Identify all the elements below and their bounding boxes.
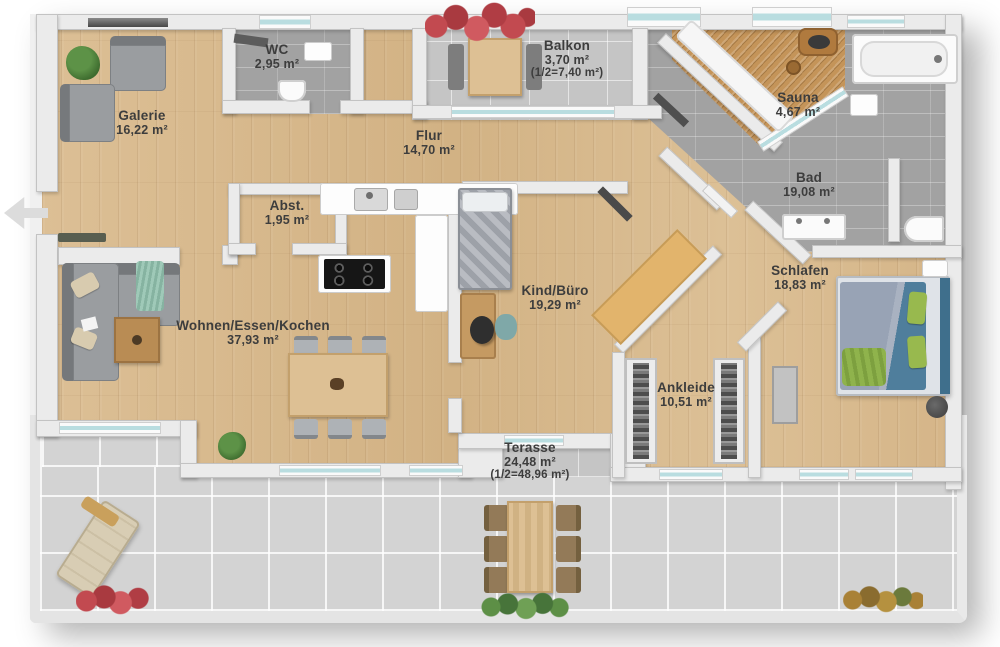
bath-sink: [782, 214, 846, 240]
wall-bath-partition: [888, 158, 900, 242]
bath-toilet: [904, 216, 944, 242]
coffee-table-bowl-icon: [132, 335, 142, 345]
bed-headboard: [940, 278, 950, 394]
room-label-abst: Abst. 1,95 m²: [265, 198, 309, 227]
dresser: [772, 366, 798, 424]
terrace-plants-orange-icon: [843, 584, 923, 616]
window-left-bottom-wall: [60, 423, 160, 433]
room-label-bad: Bad 19,08 m²: [783, 170, 835, 199]
stool-teal: [495, 314, 517, 340]
dining-chair: [328, 419, 352, 439]
wc-sink: [304, 42, 332, 61]
window-balcony-door: [452, 107, 614, 117]
terrace-plants-icon: [480, 592, 572, 622]
room-label-ankleide: Ankleide 10,51 m²: [657, 380, 715, 409]
sideboard: [58, 233, 106, 242]
wall-abst-bottom-a: [228, 243, 256, 255]
terrace-chair: [484, 536, 509, 562]
room-label-terasse: Terasse 24,48 m² (1/2=48,96 m²): [490, 440, 569, 482]
wardrobe-clothes-icon: [721, 363, 737, 459]
window-top-wc: [260, 16, 310, 28]
window-schlafen-a: [800, 470, 848, 479]
window-top-sauna-right: [753, 8, 831, 26]
room-label-wohnen: Wohnen/Essen/Kochen 37,93 m²: [176, 318, 330, 347]
floor-plan: Galerie 16,22 m² WC 2,95 m² Flur 14,70 m…: [0, 0, 1000, 647]
terrace-flowers-red-icon: [76, 584, 150, 618]
terrace-chair: [556, 567, 581, 593]
wc-toilet: [278, 80, 306, 102]
terrace-chair: [556, 505, 581, 531]
sauna-bucket-icon: [786, 60, 801, 75]
window-top-galerie: [88, 18, 168, 27]
wall-kind-left-lower: [448, 398, 462, 433]
room-label-sauna: Sauna 4,67 m²: [776, 90, 820, 119]
wardrobe-left: [625, 358, 657, 464]
wall-left-lower: [36, 234, 58, 437]
galerie-plant-icon: [66, 46, 100, 80]
wardrobe-right: [713, 358, 745, 464]
office-chair: [470, 316, 494, 344]
room-label-galerie: Galerie 16,22 m²: [116, 108, 168, 137]
bed-pillow: [462, 192, 508, 212]
room-label-wc: WC 2,95 m²: [255, 42, 299, 71]
balcony-table: [468, 38, 522, 96]
sauna-stove-stones-icon: [808, 35, 830, 49]
balcony-flowers-icon: [425, 2, 535, 46]
wall-ankleide-left: [612, 352, 625, 478]
dining-chair: [294, 419, 318, 439]
window-top-bath: [848, 16, 904, 27]
coffee-machine-icon: [394, 189, 418, 210]
bath-shelf: [850, 94, 878, 116]
window-ankleide-terrace: [660, 470, 722, 479]
terrace-table: [507, 501, 553, 593]
door-living-terrace: [410, 466, 462, 475]
terrace-chair: [556, 536, 581, 562]
wardrobe-clothes-icon: [633, 363, 649, 459]
room-label-schlafen: Schlafen 18,83 m²: [771, 263, 829, 292]
terrace-chair: [484, 505, 509, 531]
bed-pillow-green-2: [907, 335, 927, 368]
sink-faucet-icon: [796, 218, 802, 224]
balcony-bench-left: [448, 44, 464, 90]
window-living-terrace: [280, 466, 380, 475]
bed-pillow-green-1: [907, 291, 928, 324]
terrace-chair: [484, 567, 509, 593]
terrace-patch-left: [42, 437, 197, 467]
room-label-flur: Flur 14,70 m²: [403, 128, 455, 157]
bathtub-faucet-icon: [934, 55, 942, 63]
throw-blanket: [136, 261, 164, 311]
wall-schlafen-top: [812, 245, 962, 258]
bedroom-stool: [926, 396, 948, 418]
armchair-side: [60, 84, 115, 142]
room-label-kind: Kind/Büro 19,29 m²: [521, 283, 588, 312]
bed-blanket-green: [842, 348, 886, 386]
armchair-top: [110, 36, 166, 91]
table-centerpiece-icon: [330, 378, 344, 390]
sink-faucet-icon: [824, 218, 830, 224]
room-label-balkon: Balkon 3,70 m² (1/2=7,40 m²): [531, 38, 604, 80]
kitchen-counter-side: [415, 215, 448, 312]
cooktop: [324, 259, 385, 289]
wall-left-upper: [36, 14, 58, 192]
wall-wc-bottom-a: [222, 100, 310, 114]
window-schlafen-b: [856, 470, 912, 479]
wall-ankleide-right: [748, 337, 761, 478]
faucet-icon: [366, 192, 373, 199]
dining-chair: [362, 419, 386, 439]
wall-abst-bottom-b: [292, 243, 347, 255]
nightstand: [922, 260, 948, 277]
